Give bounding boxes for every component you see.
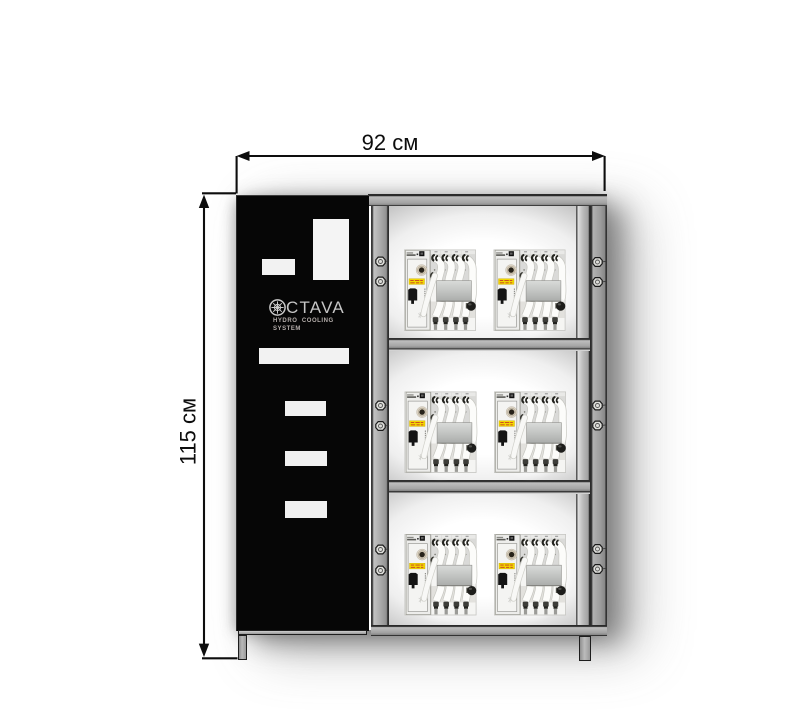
svg-text:92 см: 92 см: [362, 130, 419, 155]
svg-text:115 см: 115 см: [176, 398, 201, 465]
